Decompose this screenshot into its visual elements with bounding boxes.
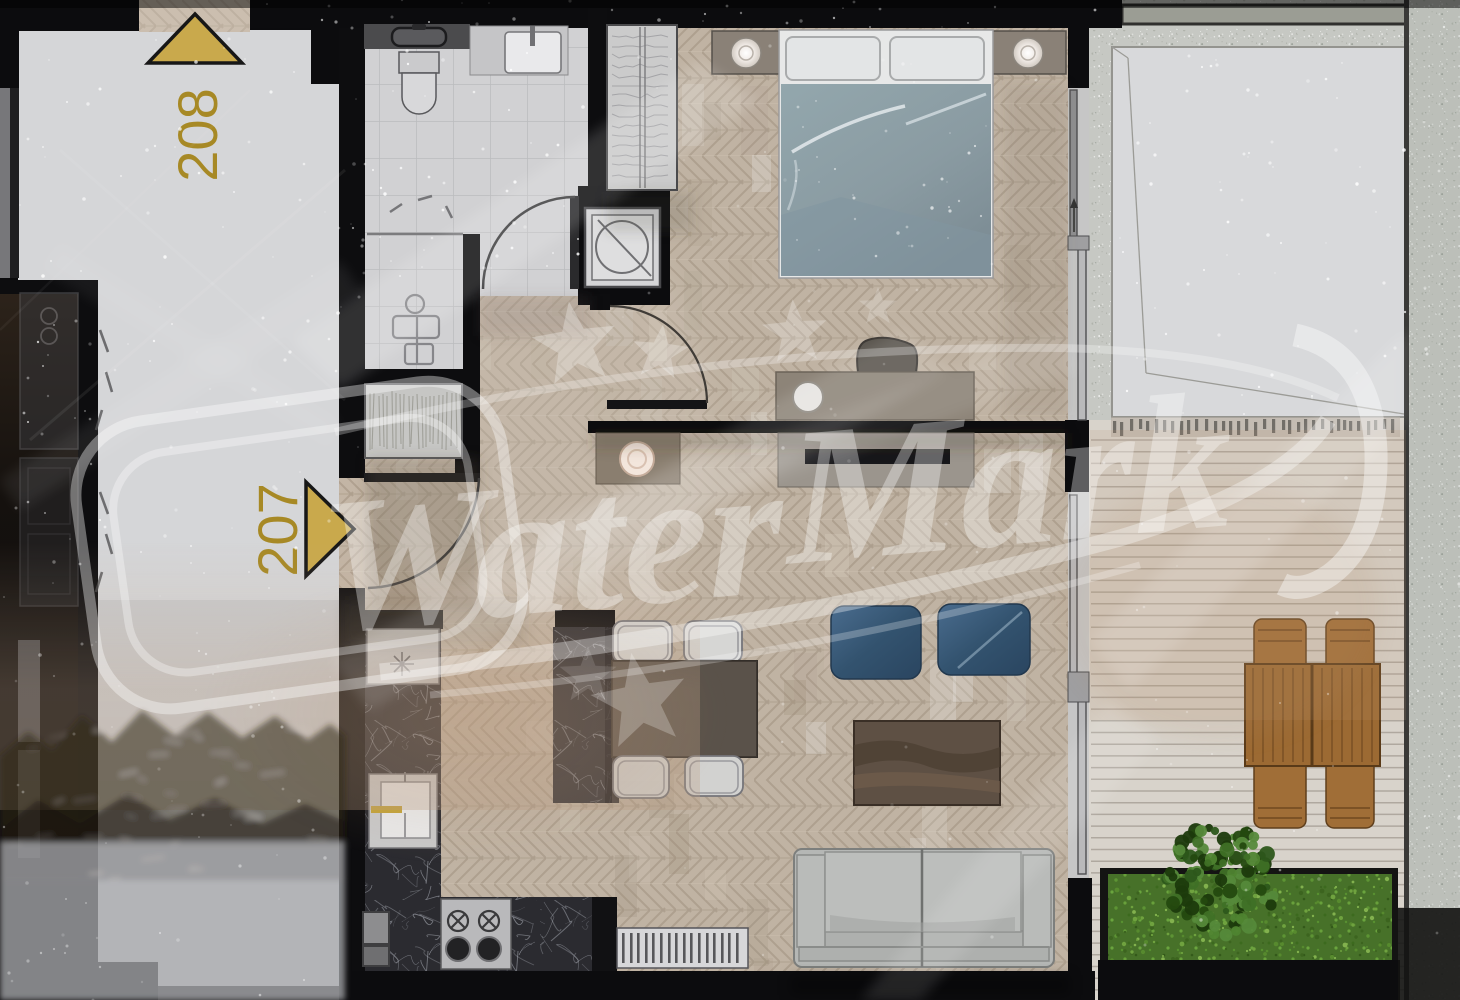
- svg-text:Mark: Mark: [782, 351, 1234, 607]
- svg-text:208: 208: [166, 88, 229, 181]
- svg-text:Water: Water: [317, 420, 787, 674]
